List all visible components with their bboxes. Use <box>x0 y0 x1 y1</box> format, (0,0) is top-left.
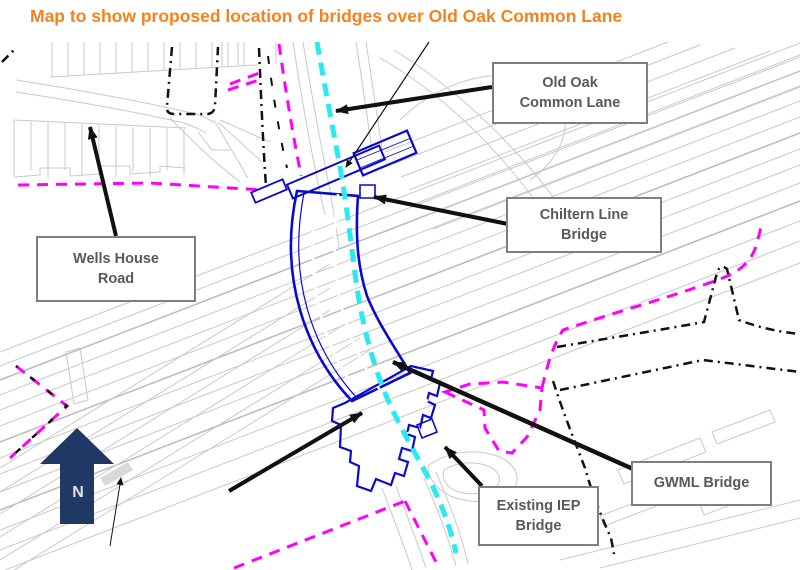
callout-line: Common Lane <box>520 93 621 113</box>
callout-line: Bridge <box>561 225 607 245</box>
callout-gwml-bridge: GWML Bridge <box>631 461 772 506</box>
callout-line: Chiltern Line <box>540 205 629 225</box>
north-arrow-label: N <box>72 484 84 501</box>
leader-wells-house-road <box>90 127 116 236</box>
callout-line: Existing IEP <box>497 496 581 516</box>
callout-line: Old Oak <box>542 73 598 93</box>
north-arrow: N <box>40 428 114 524</box>
map-figure: Map to show proposed location of bridges… <box>0 0 800 570</box>
callout-old-oak-common-lane: Old Oak Common Lane <box>492 62 648 124</box>
callout-line: GWML Bridge <box>654 473 750 493</box>
callout-chiltern-line-bridge: Chiltern Line Bridge <box>506 197 662 253</box>
callout-line: Road <box>98 269 134 289</box>
old-oak-common-lane-route <box>317 42 456 553</box>
callout-line: Bridge <box>516 516 562 536</box>
leader-chiltern-line-bridge <box>374 197 508 224</box>
callout-line: Wells House <box>73 249 159 269</box>
callout-wells-house-road: Wells House Road <box>36 236 196 302</box>
callout-existing-iep-bridge: Existing IEP Bridge <box>478 486 599 546</box>
